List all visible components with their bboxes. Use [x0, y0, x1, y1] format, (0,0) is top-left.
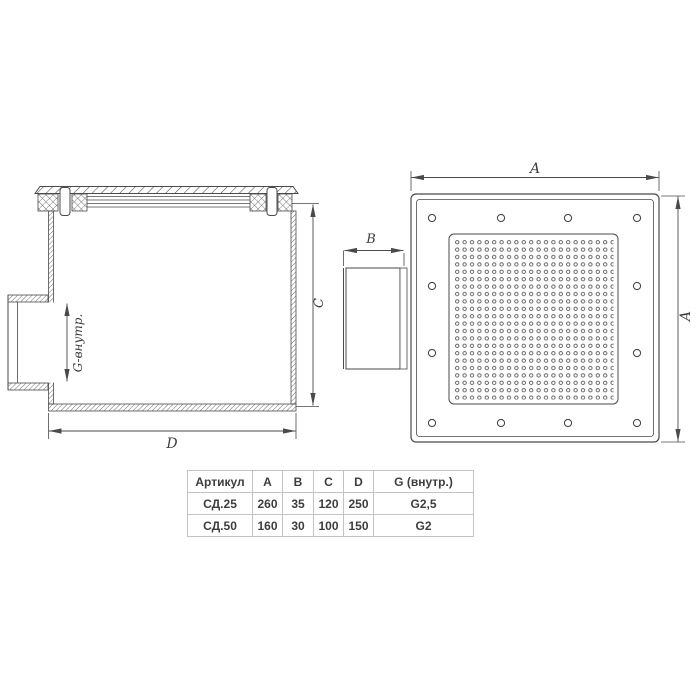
side-view-plate-stack — [87, 197, 250, 208]
technical-drawing: G-внутр. C D — [0, 0, 700, 465]
table-header-a: A — [253, 471, 283, 493]
screw-hole — [564, 214, 571, 221]
dimension-b-label: B — [365, 232, 376, 247]
screw-hole — [633, 349, 640, 356]
side-view-bottom-plate — [49, 404, 297, 411]
table-header-row: Артикул A B C D G (внутр.) — [188, 471, 474, 493]
table-cell-c: 120 — [314, 493, 344, 515]
bolt-right — [267, 188, 277, 216]
table-header-g: G (внутр.) — [374, 471, 474, 493]
gasket-block — [38, 194, 58, 211]
table-header-d: D — [344, 471, 374, 493]
dimension-a-top: A — [411, 161, 659, 191]
gasket-block — [278, 194, 292, 211]
screw-hole — [497, 419, 504, 426]
screw-hole — [428, 214, 435, 221]
table-cell-article: СД.25 — [188, 493, 253, 515]
dimension-a-right: A — [661, 196, 694, 442]
drawing-canvas: G-внутр. C D — [0, 0, 700, 700]
gasket-block — [72, 194, 87, 211]
gasket-block — [250, 194, 266, 211]
screw-hole — [428, 349, 435, 356]
screw-hole — [633, 214, 640, 221]
screw-hole — [497, 214, 504, 221]
table-cell-a: 260 — [253, 493, 283, 515]
dimension-a-top-label: A — [528, 161, 540, 177]
table-cell-c: 100 — [314, 515, 344, 537]
dimension-a-right-label: A — [678, 311, 694, 323]
pipe-top-wall — [8, 295, 48, 302]
table-cell-d: 150 — [344, 515, 374, 537]
side-view-lid-flange — [35, 187, 298, 194]
front-view-pipe — [344, 268, 408, 369]
screw-hole — [564, 419, 571, 426]
dimension-d: D — [49, 413, 297, 452]
dimensions-table: Артикул A B C D G (внутр.) СД.25 260 35 … — [187, 470, 474, 537]
table-row: СД.25 260 35 120 250 G2,5 — [188, 493, 474, 515]
bolt-left — [60, 188, 70, 216]
table-header-b: B — [283, 471, 314, 493]
pipe-opening — [46, 303, 56, 383]
table-header-article: Артикул — [188, 471, 253, 493]
table-cell-a: 160 — [253, 515, 283, 537]
dimension-d-label: D — [165, 436, 177, 452]
table-row: СД.50 160 30 100 150 G2 — [188, 515, 474, 537]
dimension-c: C — [292, 204, 327, 407]
perforation-dot-grid — [454, 239, 614, 400]
front-view: A A B — [344, 161, 695, 442]
screw-hole — [428, 419, 435, 426]
table-cell-d: 250 — [344, 493, 374, 515]
screw-hole — [633, 419, 640, 426]
pipe-collar — [400, 268, 407, 369]
dimension-g-label: G-внутр. — [71, 314, 85, 373]
screw-hole — [633, 282, 640, 289]
table-header-c: C — [314, 471, 344, 493]
pipe-bottom-wall — [8, 383, 48, 390]
table-cell-g: G2 — [374, 515, 474, 537]
dimension-b: B — [344, 232, 405, 266]
side-view: G-внутр. C D — [8, 187, 327, 453]
screw-hole — [428, 282, 435, 289]
table-cell-b: 30 — [283, 515, 314, 537]
pipe-body — [346, 268, 400, 369]
dimension-g: G-внутр. — [67, 304, 85, 382]
side-view-right-wall — [291, 211, 296, 404]
table-cell-article: СД.50 — [188, 515, 253, 537]
table-cell-g: G2,5 — [374, 493, 474, 515]
table-cell-b: 35 — [283, 493, 314, 515]
side-view-pipe — [8, 295, 56, 390]
dimension-c-label: C — [312, 298, 327, 308]
